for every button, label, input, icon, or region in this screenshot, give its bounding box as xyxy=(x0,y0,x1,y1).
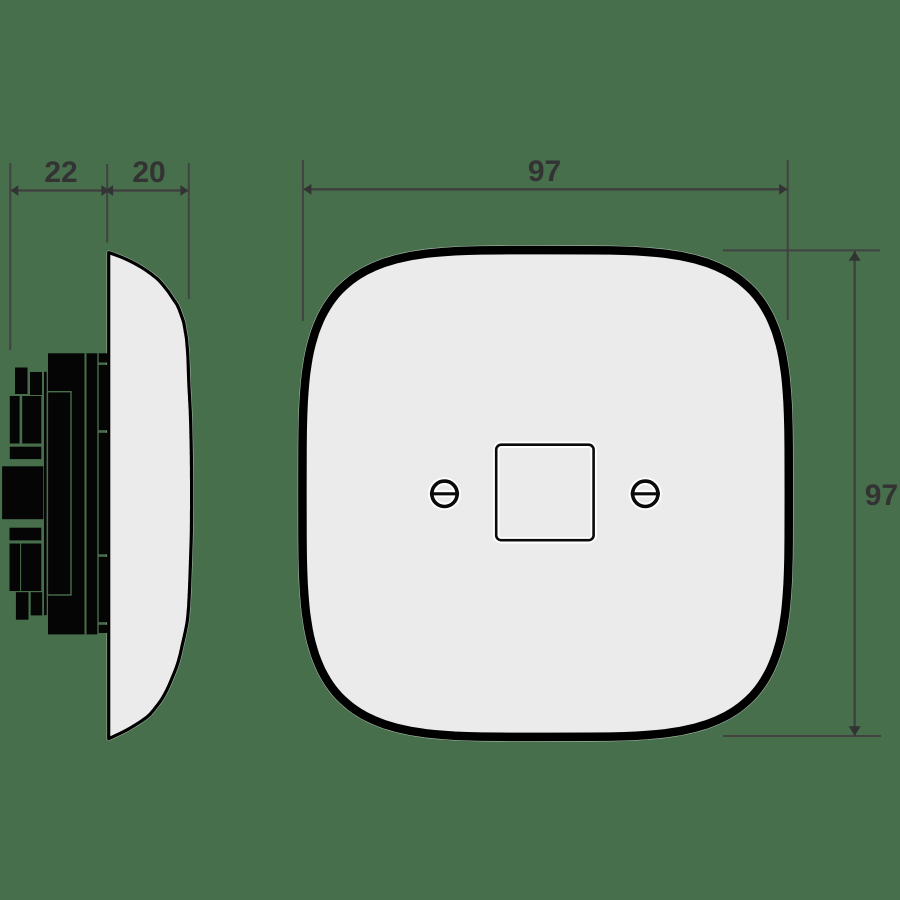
svg-text:22: 22 xyxy=(44,156,77,189)
svg-text:20: 20 xyxy=(132,156,165,189)
svg-text:97: 97 xyxy=(865,479,898,512)
svg-text:97: 97 xyxy=(528,155,561,188)
